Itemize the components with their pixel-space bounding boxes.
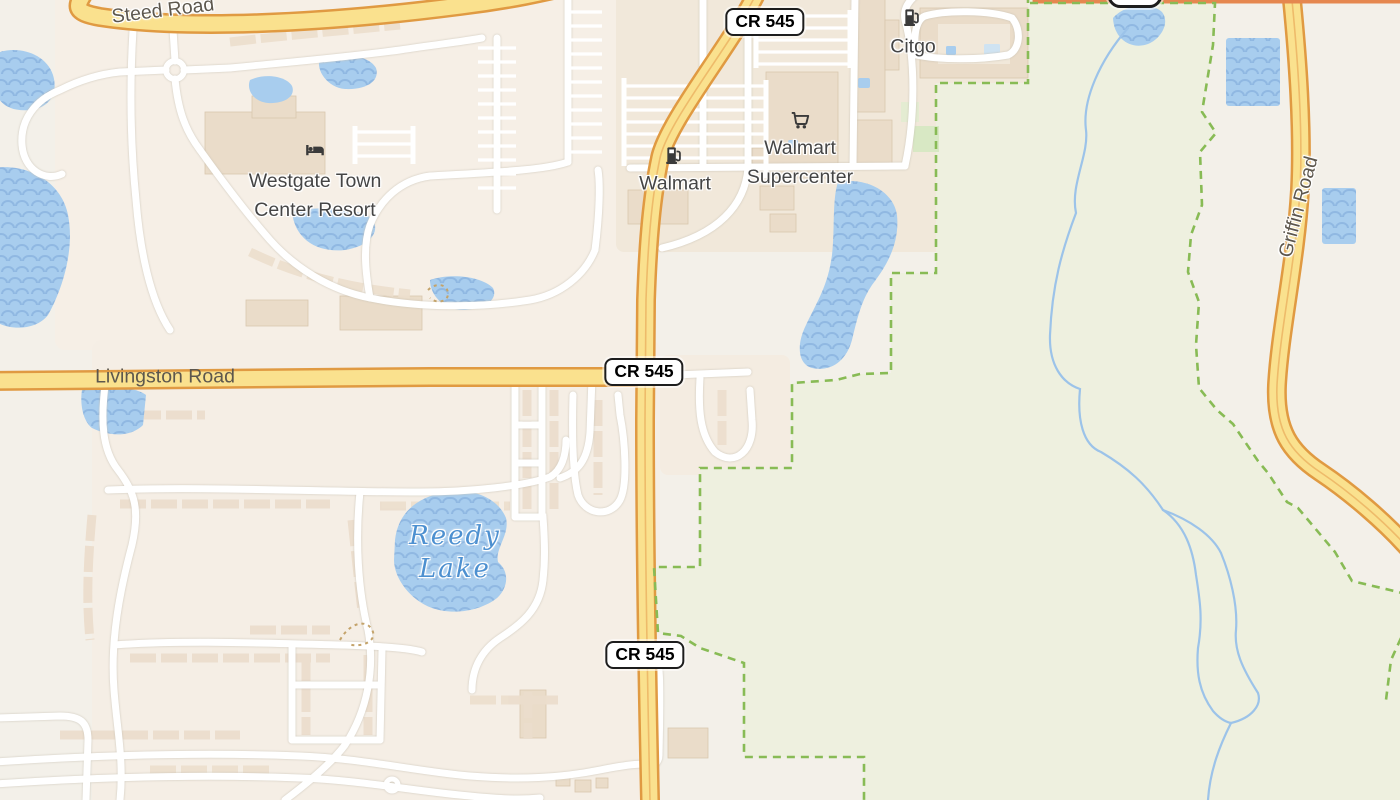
us192-shield-partial: 192 [1107,0,1162,8]
cr545-shield-middle: CR 545 [604,358,683,386]
pond-griffin [1322,188,1356,244]
cr545-shield-bottom: CR 545 [605,641,684,669]
livingston-road [0,377,648,381]
basemap-svg [0,0,1400,800]
pond-rect [1226,38,1280,106]
reedy-lake [394,491,507,612]
map-canvas[interactable]: Steed Road Livingston Road Griffin Road … [0,0,1400,800]
cr545-shield-top: CR 545 [725,8,804,36]
